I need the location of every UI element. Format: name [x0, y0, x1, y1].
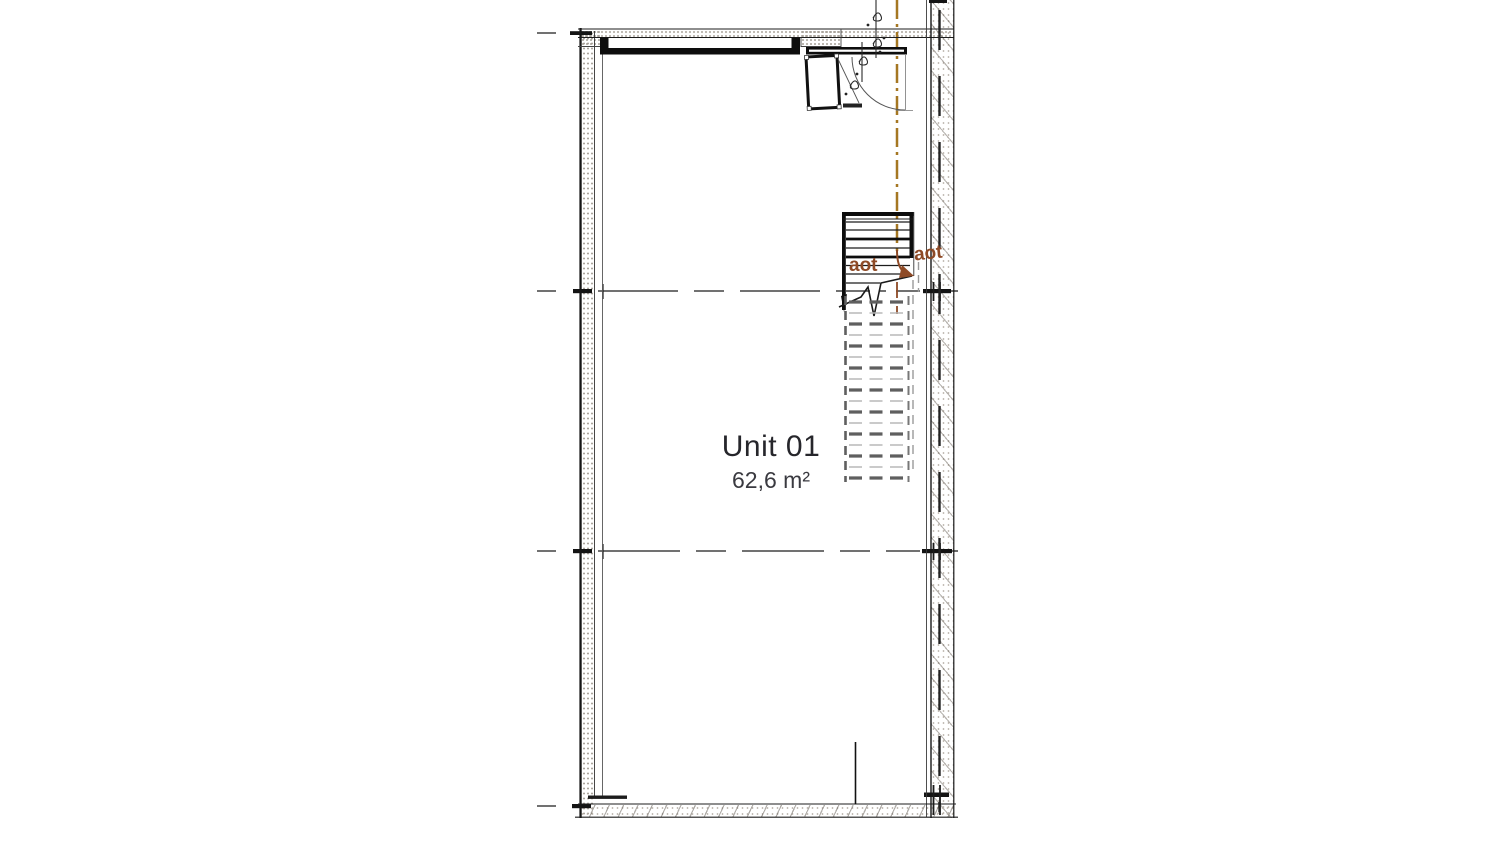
stair-walking-line — [897, 250, 914, 314]
stair-annotation-right: aot — [913, 242, 944, 267]
plan-linework — [0, 0, 1505, 847]
unit-name-label: Unit 01 — [660, 430, 882, 464]
floor-plan-canvas: Unit 01 62,6 m² aot aot — [0, 0, 1505, 847]
window — [600, 38, 800, 55]
stair-break-line — [839, 276, 912, 316]
right-wall — [927, 0, 954, 818]
stair-annotation-left: aot — [849, 255, 878, 277]
bottom-wall — [575, 742, 958, 817]
door-leaf — [804, 54, 841, 111]
left-wall — [579, 28, 627, 818]
unit-area-label: 62,6 m² — [660, 467, 882, 494]
grid-lines — [537, 0, 958, 815]
